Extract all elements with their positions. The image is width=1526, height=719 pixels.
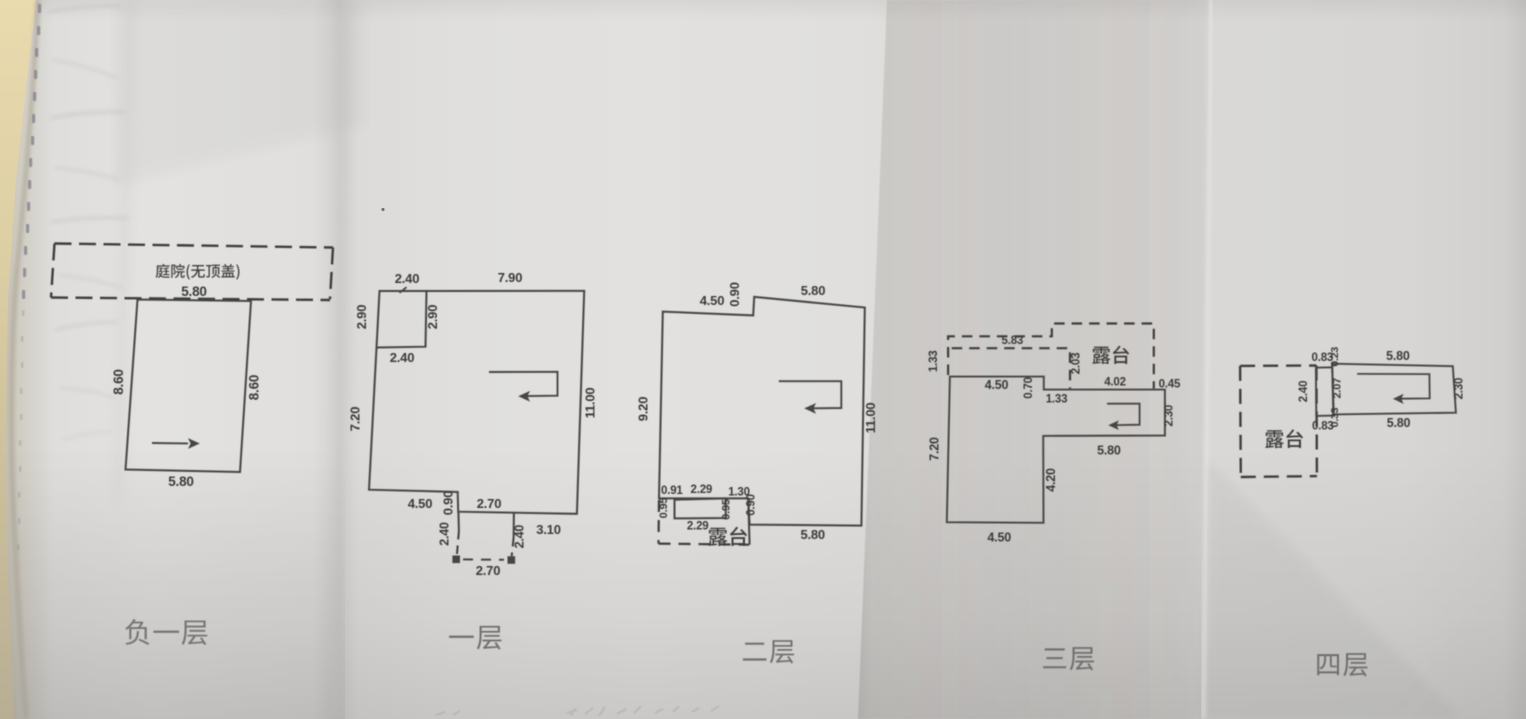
svg-text:0.70: 0.70 <box>1023 377 1035 399</box>
svg-text:5.80: 5.80 <box>801 283 826 298</box>
svg-text:1.33: 1.33 <box>1046 394 1068 406</box>
svg-text:2.29: 2.29 <box>687 521 709 533</box>
svg-text:0.95: 0.95 <box>721 499 733 520</box>
svg-text:2.40: 2.40 <box>1298 381 1310 403</box>
svg-text:0.33: 0.33 <box>1329 407 1341 427</box>
svg-text:3.10: 3.10 <box>536 522 561 537</box>
svg-text:5.80: 5.80 <box>168 474 193 489</box>
svg-text:0.90: 0.90 <box>746 494 758 516</box>
svg-text:5.80: 5.80 <box>1387 416 1411 430</box>
svg-text:8.60: 8.60 <box>247 375 262 400</box>
svg-text:4.50: 4.50 <box>985 378 1009 392</box>
svg-text:2.40: 2.40 <box>512 525 526 549</box>
svg-text:0.45: 0.45 <box>1159 379 1181 391</box>
svg-text:11.00: 11.00 <box>863 403 878 434</box>
svg-text:2.90: 2.90 <box>354 305 369 330</box>
svg-text:2.03: 2.03 <box>1071 353 1083 375</box>
svg-text:2.30: 2.30 <box>1453 378 1465 400</box>
svg-text:2.70: 2.70 <box>476 563 501 578</box>
svg-text:2.30: 2.30 <box>1164 405 1176 427</box>
svg-text:5.80: 5.80 <box>181 284 206 299</box>
svg-text:5.83: 5.83 <box>1002 335 1024 347</box>
svg-text:0.95: 0.95 <box>658 498 670 519</box>
svg-text:2.29: 2.29 <box>691 484 713 496</box>
svg-text:0.90: 0.90 <box>727 282 742 307</box>
svg-text:4.02: 4.02 <box>1104 377 1126 389</box>
svg-text:5.80: 5.80 <box>800 527 825 542</box>
svg-text:7.20: 7.20 <box>348 407 363 432</box>
svg-text:0.90: 0.90 <box>441 491 456 516</box>
svg-text:7.90: 7.90 <box>498 270 523 285</box>
svg-text:8.60: 8.60 <box>111 369 126 394</box>
svg-text:9.20: 9.20 <box>636 397 651 422</box>
svg-text:4.50: 4.50 <box>700 293 725 308</box>
svg-text:2.07: 2.07 <box>1331 378 1343 399</box>
svg-text:2.90: 2.90 <box>425 305 440 330</box>
svg-text:2.40: 2.40 <box>395 271 420 286</box>
svg-text:4.50: 4.50 <box>987 531 1011 545</box>
svg-text:0.91: 0.91 <box>661 485 683 497</box>
svg-text:2.40: 2.40 <box>390 350 415 365</box>
svg-text:2.70: 2.70 <box>477 496 502 511</box>
svg-text:5.80: 5.80 <box>1097 444 1121 458</box>
svg-text:0.23: 0.23 <box>1329 347 1341 367</box>
svg-text:4.50: 4.50 <box>408 496 433 511</box>
svg-text:7.20: 7.20 <box>928 437 942 461</box>
svg-text:5.80: 5.80 <box>1386 349 1410 363</box>
svg-text:2.40: 2.40 <box>438 522 452 546</box>
svg-text:4.20: 4.20 <box>1044 468 1058 492</box>
svg-text:11.00: 11.00 <box>583 388 598 419</box>
svg-text:1.33: 1.33 <box>928 351 940 373</box>
